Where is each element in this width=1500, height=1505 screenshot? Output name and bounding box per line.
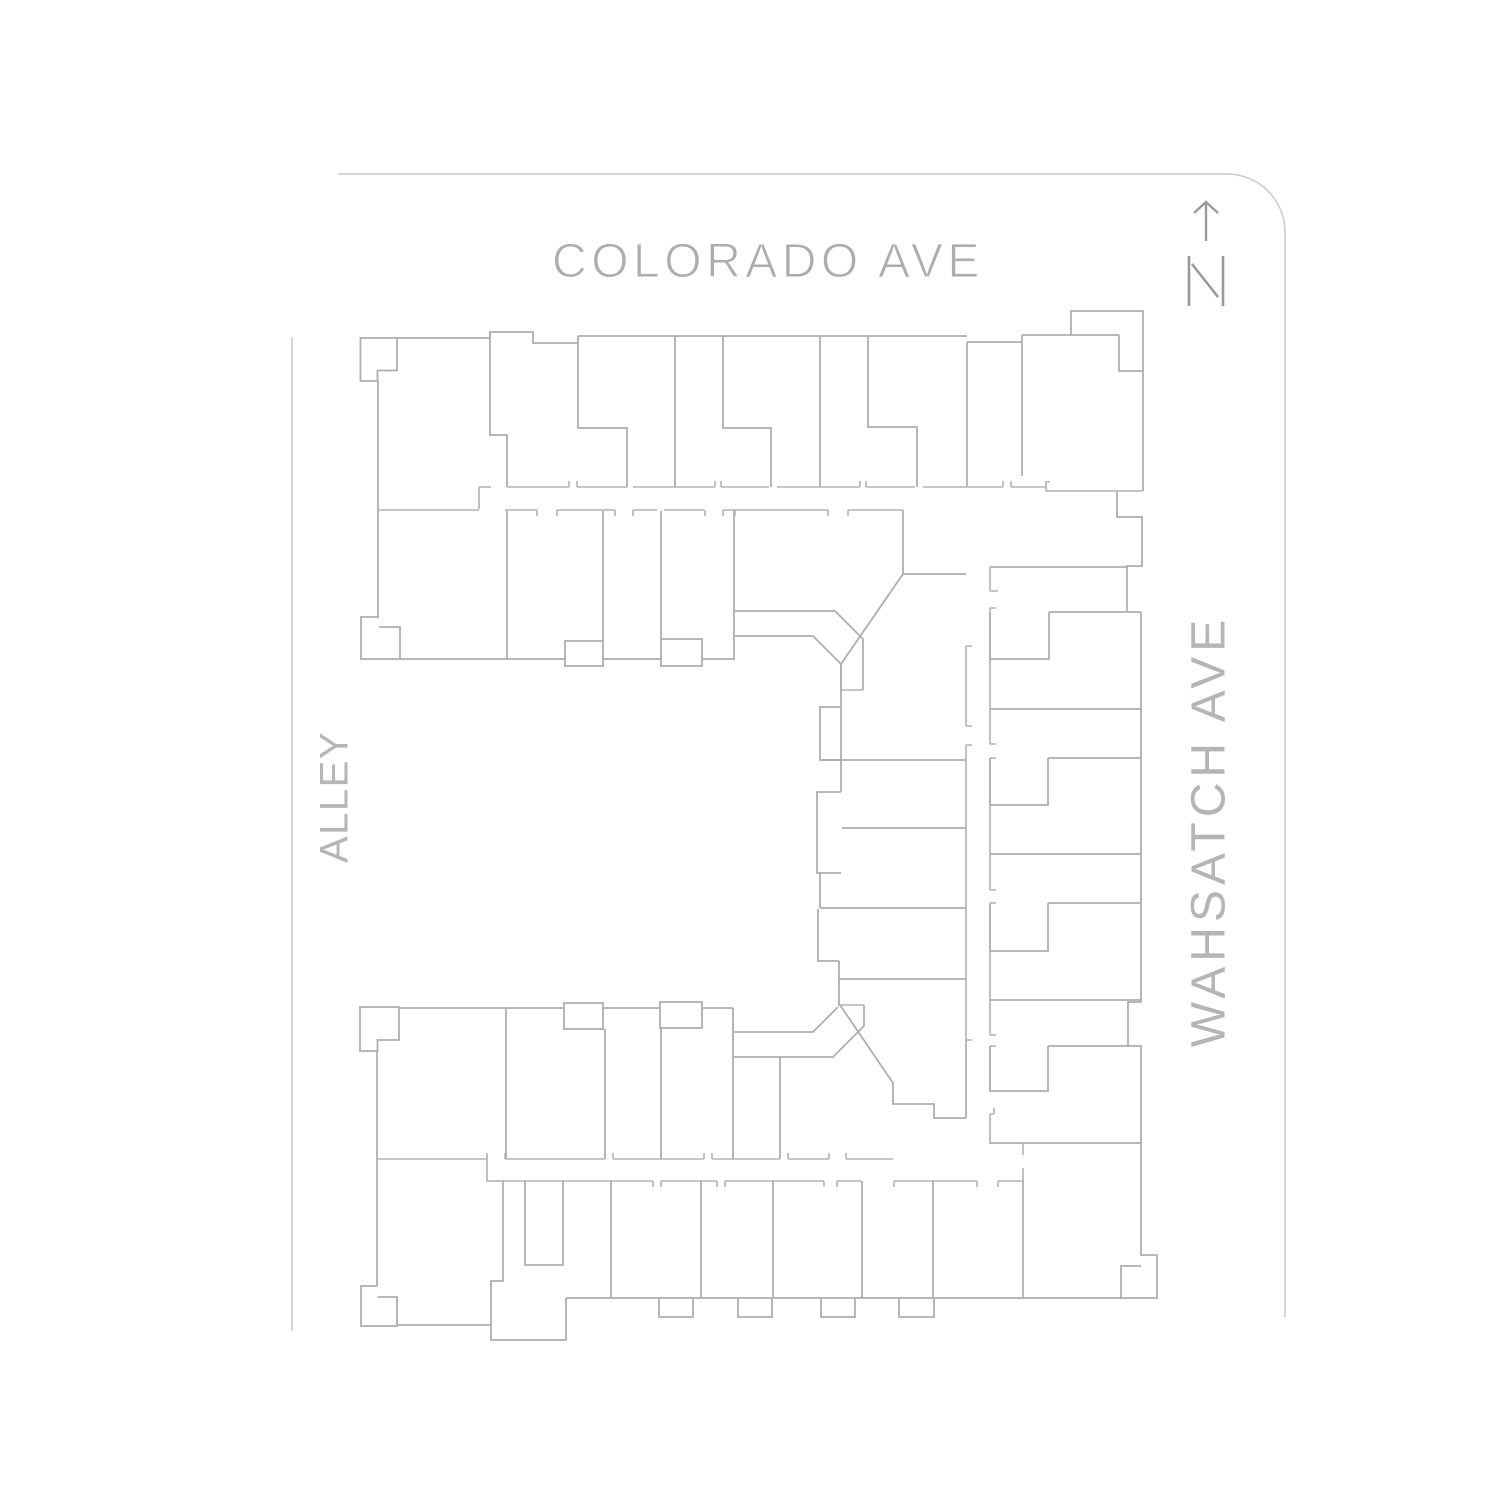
svg-text:WAHSATCH AVE: WAHSATCH AVE <box>1183 615 1236 1048</box>
svg-text:COLORADO AVE: COLORADO AVE <box>552 235 984 288</box>
svg-text:ALLEY: ALLEY <box>313 731 357 863</box>
